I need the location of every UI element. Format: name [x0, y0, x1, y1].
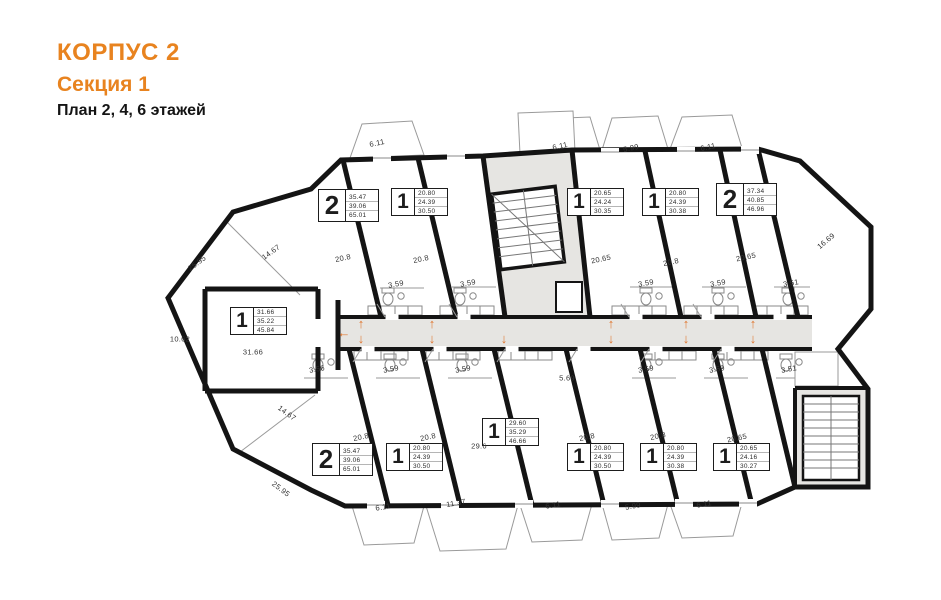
floor-plan-drawing [0, 0, 941, 600]
right-stair [803, 396, 859, 480]
floor-plan-page: КОРПУС 2 Секция 1 План 2, 4, 6 этажей [0, 0, 941, 600]
